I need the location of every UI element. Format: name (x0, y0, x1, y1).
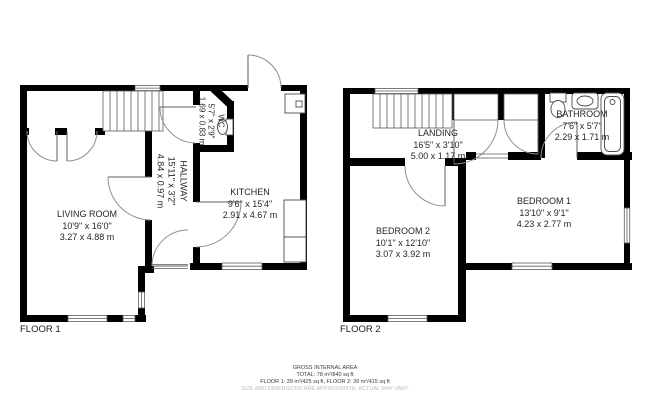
room-dim-metric: 3.27 x 4.88 m (57, 232, 117, 244)
wc-label: WC 5'7" x 2'9" 1.69 x 0.83 m (197, 97, 226, 145)
landing-closets (454, 94, 538, 120)
footer-total: TOTAL: 78 m²/840 sq ft (0, 372, 650, 379)
living-room-double-doors (27, 131, 97, 161)
room-dim-imperial: 16'5" x 3'10" (411, 139, 466, 151)
floor1-label: FLOOR 1 (20, 324, 61, 335)
window-icon (123, 316, 135, 322)
bedroom2-label: BEDROOM 2 10'1" x 12'10" 3.07 x 3.92 m (376, 226, 431, 261)
kitchen-boiler-icon (285, 94, 305, 113)
room-dim-metric: 4.23 x 2.77 m (517, 219, 572, 231)
room-dim-metric: 2.29 x 1.71 m (555, 132, 610, 144)
floor2-stairs (373, 94, 452, 128)
room-name: WC (216, 97, 226, 145)
room-name: LANDING (411, 128, 466, 140)
floorplan-canvas: LIVING ROOM 10'9" x 16'0" 3.27 x 4.88 m … (0, 0, 650, 406)
footer-disclaimer: SIZE AND DIMENSIONS ARE APPROXIMATE, ACT… (0, 386, 650, 393)
room-dim-metric: 4.84 x 0.97 m (154, 154, 166, 209)
bedroom2-door (405, 166, 445, 206)
room-name: BEDROOM 1 (517, 196, 572, 208)
window-icon (375, 89, 418, 94)
room-dim-imperial: 10'9" x 16'0" (57, 220, 117, 232)
bathroom-label: BATHROOM 7'6" x 5'7" 2.29 x 1.71 m (555, 109, 610, 144)
landing-label: LANDING 16'5" x 3'10" 5.00 x 1.17 m (411, 128, 466, 163)
floor1-stairs (103, 91, 163, 131)
kitchen-counter-icon (284, 200, 306, 262)
room-name: LIVING ROOM (57, 209, 117, 221)
window-icon (68, 316, 107, 322)
room-dim-imperial: 9'6" x 15'4" (223, 198, 278, 210)
room-dim-metric: 2.91 x 4.67 m (223, 210, 278, 222)
room-dim-imperial: 13'10" x 9'1" (517, 207, 572, 219)
window-icon (624, 208, 629, 243)
room-dim-metric: 5.00 x 1.17 m (411, 151, 466, 163)
room-dim-imperial: 5'7" x 2'9" (206, 97, 216, 145)
room-dim-metric: 1.69 x 0.83 m (197, 97, 207, 145)
footer-floors: FLOOR 1: 39 m²/425 sq ft, FLOOR 2: 39 m²… (0, 379, 650, 386)
room-name: KITCHEN (223, 187, 278, 199)
gross-internal-area-note: GROSS INTERNAL AREA TOTAL: 78 m²/840 sq … (0, 365, 650, 393)
front-door (248, 55, 281, 88)
window-icon (512, 263, 552, 270)
room-dim-metric: 3.07 x 3.92 m (376, 249, 431, 261)
window-icon (222, 263, 262, 270)
bedroom1-label: BEDROOM 1 13'10" x 9'1" 4.23 x 2.77 m (517, 196, 572, 231)
room-dim-imperial: 7'6" x 5'7" (555, 120, 610, 132)
room-name: HALLWAY (177, 154, 189, 209)
window-icon (139, 292, 145, 308)
footer-title: GROSS INTERNAL AREA (0, 365, 650, 372)
back-door (152, 230, 188, 269)
room-name: BATHROOM (555, 109, 610, 121)
window-icon (135, 86, 160, 91)
living-room-label: LIVING ROOM 10'9" x 16'0" 3.27 x 4.88 m (57, 209, 117, 244)
floor2-label: FLOOR 2 (340, 324, 381, 335)
kitchen-label: KITCHEN 9'6" x 15'4" 2.91 x 4.67 m (223, 187, 278, 222)
hallway-label: HALLWAY 15'11" x 3'2" 4.84 x 0.97 m (154, 154, 189, 209)
room-dim-imperial: 10'1" x 12'10" (376, 237, 431, 249)
wc-door (160, 107, 196, 143)
sink-icon (572, 93, 598, 109)
room-dim-imperial: 15'11" x 3'2" (165, 154, 177, 209)
closet-door-right (504, 120, 538, 154)
room-name: BEDROOM 2 (376, 226, 431, 238)
window-icon (388, 316, 427, 322)
